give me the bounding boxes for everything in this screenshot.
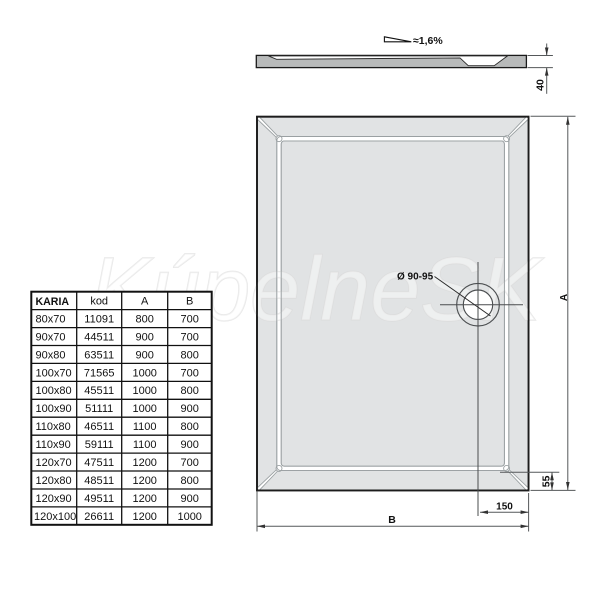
svg-text:63511: 63511 — [84, 349, 114, 361]
svg-text:100x90: 100x90 — [36, 403, 72, 415]
svg-text:1200: 1200 — [132, 493, 156, 505]
svg-text:46511: 46511 — [84, 421, 114, 433]
svg-text:80x70: 80x70 — [36, 314, 66, 326]
svg-text:1000: 1000 — [132, 367, 156, 379]
svg-text:44511: 44511 — [84, 331, 114, 343]
svg-text:1100: 1100 — [133, 439, 157, 451]
svg-text:1200: 1200 — [132, 511, 156, 523]
svg-text:11091: 11091 — [84, 314, 114, 326]
svg-text:1000: 1000 — [132, 403, 156, 415]
svg-text:A: A — [559, 294, 570, 301]
svg-text:90x70: 90x70 — [36, 331, 66, 343]
svg-text:1200: 1200 — [132, 475, 156, 487]
svg-text:800: 800 — [181, 421, 199, 433]
svg-text:48511: 48511 — [84, 475, 114, 487]
svg-text:700: 700 — [181, 367, 199, 379]
svg-text:≈1,6%: ≈1,6% — [413, 35, 443, 47]
svg-text:71565: 71565 — [84, 367, 115, 379]
svg-text:A: A — [141, 296, 149, 308]
svg-text:40: 40 — [535, 79, 547, 91]
svg-text:800: 800 — [181, 349, 199, 361]
svg-text:1100: 1100 — [133, 421, 157, 433]
svg-text:900: 900 — [136, 349, 154, 361]
svg-text:59111: 59111 — [85, 439, 114, 451]
svg-text:700: 700 — [181, 314, 199, 326]
svg-text:120x80: 120x80 — [36, 475, 72, 487]
svg-text:700: 700 — [181, 331, 199, 343]
svg-text:47511: 47511 — [84, 457, 114, 469]
svg-text:110x80: 110x80 — [36, 421, 71, 433]
svg-text:kod: kod — [90, 296, 108, 308]
svg-text:26611: 26611 — [84, 511, 114, 523]
svg-text:900: 900 — [136, 331, 154, 343]
svg-text:KARIA: KARIA — [36, 296, 70, 308]
svg-text:55: 55 — [541, 475, 553, 487]
svg-text:900: 900 — [181, 493, 199, 505]
svg-text:B: B — [388, 514, 396, 526]
svg-text:120x100: 120x100 — [34, 511, 76, 523]
svg-text:120x70: 120x70 — [36, 457, 72, 469]
svg-text:150: 150 — [496, 502, 513, 513]
svg-text:45511: 45511 — [84, 385, 114, 397]
svg-text:1200: 1200 — [132, 457, 156, 469]
svg-text:B: B — [186, 296, 193, 308]
svg-text:120x90: 120x90 — [36, 493, 72, 505]
svg-text:49511: 49511 — [84, 493, 114, 505]
svg-text:90x80: 90x80 — [36, 349, 66, 361]
svg-text:800: 800 — [181, 475, 199, 487]
svg-text:800: 800 — [181, 385, 199, 397]
svg-text:900: 900 — [181, 439, 199, 451]
svg-text:1000: 1000 — [177, 511, 201, 523]
svg-text:100x80: 100x80 — [36, 385, 72, 397]
svg-text:900: 900 — [181, 403, 199, 415]
svg-text:800: 800 — [136, 314, 154, 326]
svg-text:110x90: 110x90 — [36, 439, 71, 451]
svg-text:700: 700 — [181, 457, 199, 469]
svg-text:1000: 1000 — [132, 385, 156, 397]
svg-text:Ø 90-95: Ø 90-95 — [397, 272, 434, 283]
svg-text:51111: 51111 — [85, 403, 113, 415]
svg-text:100x70: 100x70 — [36, 367, 72, 379]
